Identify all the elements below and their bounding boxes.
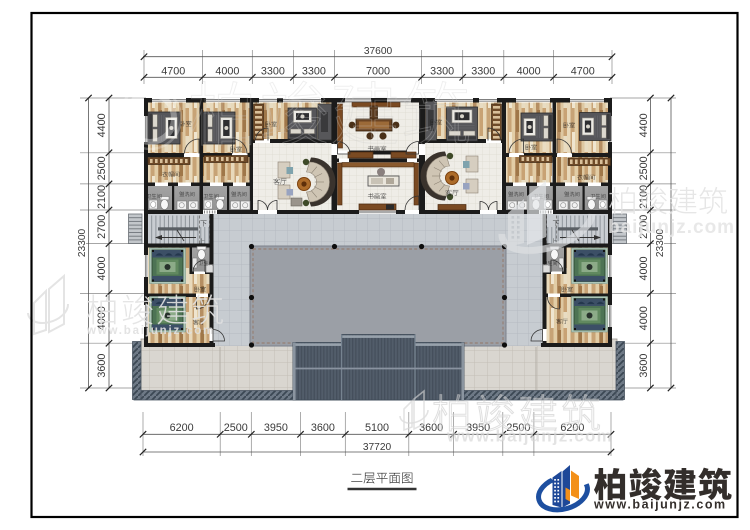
svg-text:3300: 3300 xyxy=(261,65,285,77)
svg-text:2100: 2100 xyxy=(96,185,108,209)
svg-text:www.baijunjz.com: www.baijunjz.com xyxy=(86,325,215,337)
svg-text:3600: 3600 xyxy=(96,354,108,378)
svg-text:2700: 2700 xyxy=(96,215,108,239)
svg-text:www.baijunjz.com: www.baijunjz.com xyxy=(593,498,727,512)
svg-text:www.baijunjz.com: www.baijunjz.com xyxy=(446,427,613,446)
svg-text:4400: 4400 xyxy=(96,113,108,137)
svg-text:3950: 3950 xyxy=(264,422,288,434)
svg-text:37600: 37600 xyxy=(364,46,393,57)
svg-text:4700: 4700 xyxy=(161,65,185,77)
svg-text:23300: 23300 xyxy=(77,229,88,258)
svg-text:4000: 4000 xyxy=(96,256,108,280)
svg-text:3300: 3300 xyxy=(302,65,326,77)
svg-text:7000: 7000 xyxy=(366,65,390,77)
svg-text:baijunjz.com: baijunjz.com xyxy=(608,217,735,238)
svg-text:5100: 5100 xyxy=(365,422,389,434)
svg-text:2500: 2500 xyxy=(224,422,248,434)
svg-text:4000: 4000 xyxy=(638,256,650,280)
svg-text:4700: 4700 xyxy=(571,65,595,77)
svg-text:37720: 37720 xyxy=(363,442,392,453)
svg-text:6200: 6200 xyxy=(170,422,194,434)
svg-text:3300: 3300 xyxy=(430,65,454,77)
svg-text:2500: 2500 xyxy=(638,156,650,180)
svg-text:3600: 3600 xyxy=(311,422,335,434)
svg-text:4000: 4000 xyxy=(215,65,239,77)
svg-text:4000: 4000 xyxy=(517,65,541,77)
svg-text:3600: 3600 xyxy=(638,354,650,378)
svg-text:4400: 4400 xyxy=(638,113,650,137)
svg-text:2500: 2500 xyxy=(96,156,108,180)
svg-text:4000: 4000 xyxy=(638,306,650,330)
svg-text:3300: 3300 xyxy=(471,65,495,77)
